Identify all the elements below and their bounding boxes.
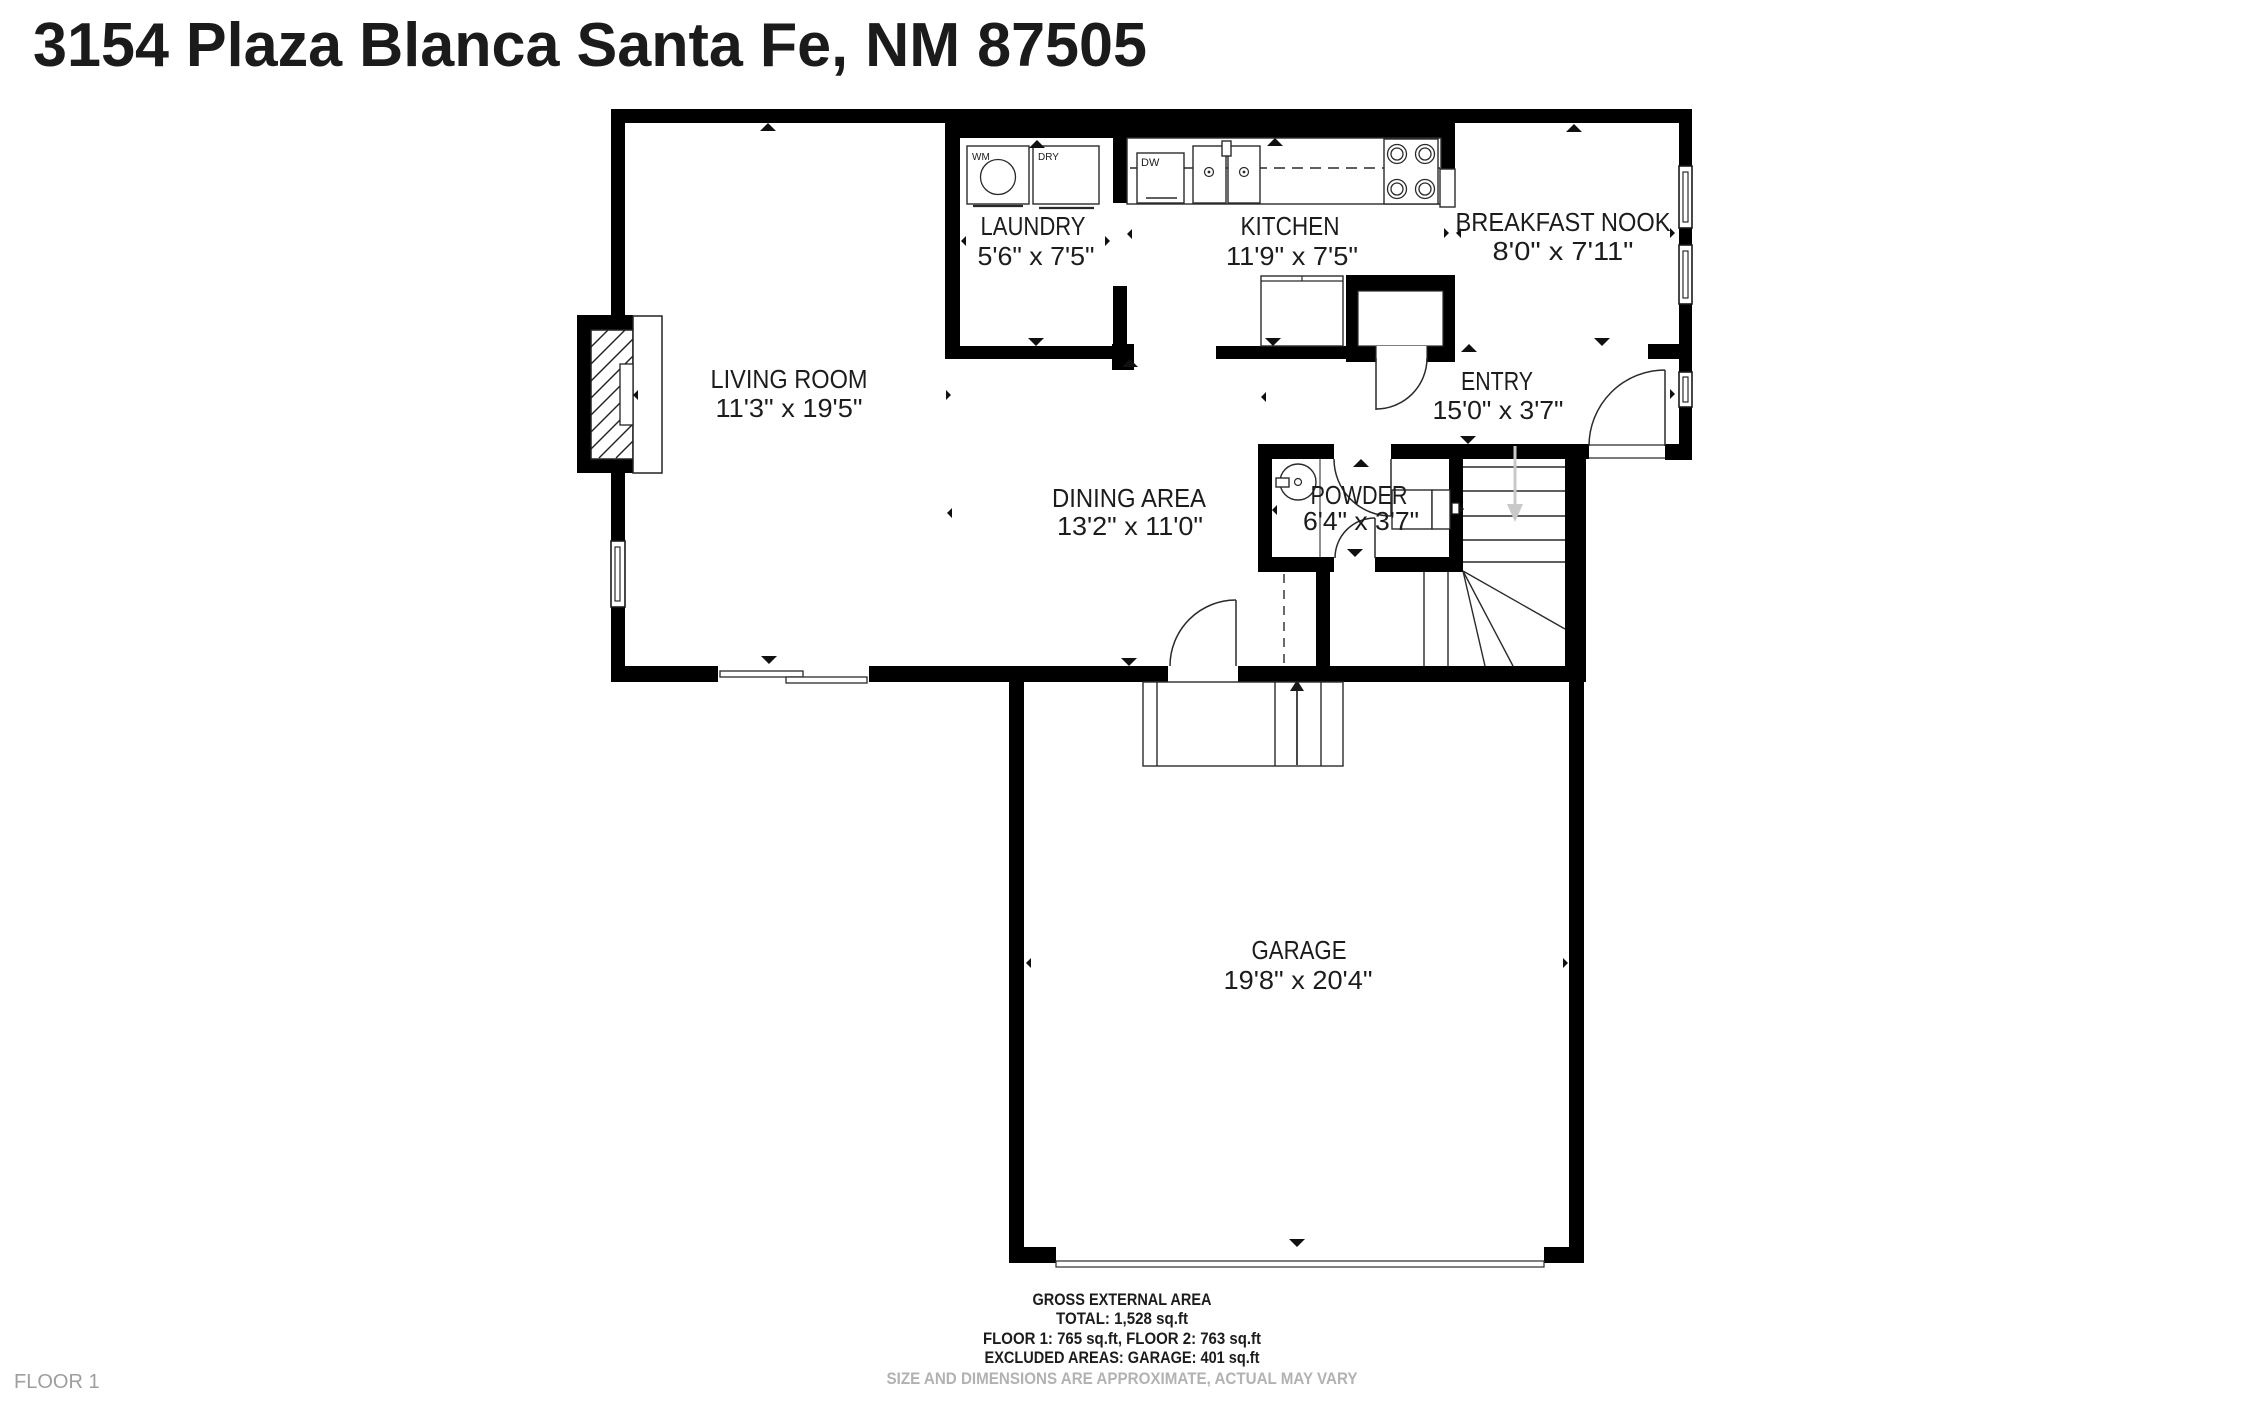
svg-text:ENTRY: ENTRY [1461, 366, 1533, 396]
svg-text:SIZE AND DIMENSIONS ARE APPROX: SIZE AND DIMENSIONS ARE APPROXIMATE, ACT… [887, 1369, 1359, 1388]
svg-text:DINING AREA: DINING AREA [1052, 483, 1207, 513]
svg-text:BREAKFAST NOOK: BREAKFAST NOOK [1456, 207, 1672, 237]
svg-text:11'9" x 7'5": 11'9" x 7'5" [1226, 241, 1358, 271]
svg-text:KITCHEN: KITCHEN [1241, 211, 1340, 241]
svg-text:GARAGE: GARAGE [1252, 935, 1347, 965]
svg-text:LIVING ROOM: LIVING ROOM [711, 364, 868, 394]
svg-text:GROSS EXTERNAL AREA: GROSS EXTERNAL AREA [1033, 1290, 1212, 1309]
svg-text:TOTAL: 1,528 sq.ft: TOTAL: 1,528 sq.ft [1056, 1309, 1188, 1328]
svg-text:3154 Plaza Blanca Santa Fe, NM: 3154 Plaza Blanca Santa Fe, NM 87505 [33, 11, 1147, 80]
svg-text:11'3" x 19'5": 11'3" x 19'5" [716, 393, 863, 423]
svg-text:15'0" x 3'7": 15'0" x 3'7" [1433, 395, 1564, 425]
svg-text:WM: WM [972, 152, 990, 163]
svg-text:DW: DW [1141, 157, 1160, 169]
svg-text:DRY: DRY [1038, 152, 1059, 163]
svg-text:8'0" x 7'11": 8'0" x 7'11" [1493, 236, 1634, 266]
svg-text:13'2" x 11'0": 13'2" x 11'0" [1057, 511, 1203, 541]
svg-text:6'4" x 3'7": 6'4" x 3'7" [1303, 506, 1419, 536]
svg-text:19'8" x 20'4": 19'8" x 20'4" [1224, 965, 1373, 995]
svg-text:5'6" x 7'5": 5'6" x 7'5" [978, 241, 1095, 271]
svg-text:FLOOR 1: FLOOR 1 [14, 1371, 100, 1393]
svg-text:FLOOR 1: 765 sq.ft, FLOOR 2: 7: FLOOR 1: 765 sq.ft, FLOOR 2: 763 sq.ft [983, 1329, 1261, 1348]
svg-text:LAUNDRY: LAUNDRY [981, 211, 1086, 241]
svg-text:EXCLUDED AREAS: GARAGE: 401 sq: EXCLUDED AREAS: GARAGE: 401 sq.ft [985, 1348, 1260, 1367]
